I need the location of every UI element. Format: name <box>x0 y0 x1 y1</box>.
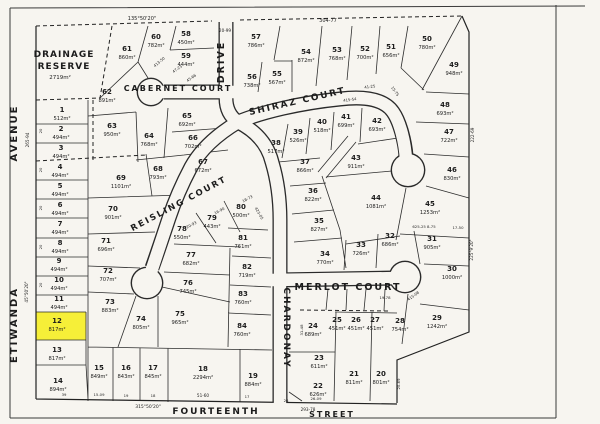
lot-number-6: 6 <box>58 201 63 209</box>
lot-number-16: 16 <box>121 364 131 372</box>
lot-number-7: 7 <box>58 220 63 228</box>
dimension-text: 293-78 <box>301 407 316 412</box>
dimension-text: 17 <box>245 394 250 399</box>
lot-number-35: 35 <box>314 217 324 225</box>
dimension-text: 17-50 <box>452 225 464 230</box>
lot-area-32: 686m² <box>381 242 398 248</box>
lot-area-31: 905m² <box>423 245 440 251</box>
lot-number-34: 34 <box>320 250 330 258</box>
lot-number-39: 39 <box>293 128 303 136</box>
lot-number-72: 72 <box>103 267 113 275</box>
lot-number-36: 36 <box>308 187 318 195</box>
lot-area-60: 782m² <box>147 43 164 49</box>
lot-area-19: 884m² <box>244 382 261 388</box>
lot-area-79: 443m² <box>203 224 220 230</box>
dimension-text: 20 <box>38 128 43 133</box>
lot-area-51: 656m² <box>382 53 399 59</box>
lot-area-11: 494m² <box>50 305 67 311</box>
lot-number-76: 76 <box>183 279 193 287</box>
lot-number-32: 32 <box>385 232 395 240</box>
lot-area-80: 500m² <box>232 213 249 219</box>
lot-area-4: 494m² <box>51 173 68 179</box>
lot-number-26: 26 <box>351 316 361 324</box>
dimension-text: 265-94 <box>25 132 30 147</box>
lot-area-8: 494m² <box>51 249 68 255</box>
lot-number-73: 73 <box>105 298 115 306</box>
lot-area-5: 494m² <box>51 192 68 198</box>
lot-area-78: 550m² <box>173 235 190 241</box>
dimension-text: 18 <box>151 393 156 398</box>
dimension-text: 45°50'20" <box>24 281 29 302</box>
lot-area-53: 768m² <box>328 56 345 62</box>
lot-area-25: 451m² <box>328 326 345 332</box>
lot-area-67: 672m² <box>194 168 211 174</box>
lot-number-46: 46 <box>447 166 457 174</box>
lot-number-17: 17 <box>148 364 158 372</box>
lot-number-8: 8 <box>58 239 63 247</box>
lot-area-64: 768m² <box>140 142 157 148</box>
lot-number-50: 50 <box>422 35 432 43</box>
lot-area-71: 696m² <box>97 247 114 253</box>
dimension-text: 20 <box>38 282 43 287</box>
lot-number-84: 84 <box>237 322 247 330</box>
lot-number-64: 64 <box>144 132 154 140</box>
street-label-avenue: AVENUE <box>9 105 20 162</box>
lot-number-24: 24 <box>308 322 318 330</box>
lot-area-40: 518m² <box>313 128 330 134</box>
lot-area-36: 822m² <box>304 197 321 203</box>
lot-number-29: 29 <box>432 314 442 322</box>
plan-canvas: DRAINAGE RESERVE 2719m² 1512m²2494m²3494… <box>0 0 600 424</box>
lot-number-48: 48 <box>440 101 450 109</box>
lot-area-77: 682m² <box>182 261 199 267</box>
lot-area-83: 760m² <box>234 300 251 306</box>
lot-number-45: 45 <box>425 200 435 208</box>
lot-area-72: 707m² <box>99 277 116 283</box>
lot-area-43: 911m² <box>347 164 364 170</box>
lot-number-81: 81 <box>238 234 248 242</box>
lot-number-22: 22 <box>313 382 323 390</box>
lot-number-59: 59 <box>181 52 191 60</box>
lot-area-12: 817m² <box>48 327 65 333</box>
lot-area-7: 494m² <box>51 230 68 236</box>
street-label-merlot-court: MERLOT COURT <box>295 282 402 293</box>
lot-number-54: 54 <box>301 48 311 56</box>
lot-number-11: 11 <box>54 295 64 303</box>
lot-area-37: 866m² <box>296 168 313 174</box>
lot-number-80: 80 <box>236 203 246 211</box>
lot-area-29: 1242m² <box>427 324 447 330</box>
lot-number-74: 74 <box>136 315 146 323</box>
lot-area-41: 699m² <box>337 123 354 129</box>
lot-area-30: 1000m² <box>442 275 462 281</box>
lot-area-56: 738m² <box>243 83 260 89</box>
lot-area-74: 805m² <box>132 325 149 331</box>
dimension-text: 20-99 <box>219 28 232 33</box>
lot-area-1: 512m² <box>53 116 70 122</box>
lot-area-39: 526m² <box>289 138 306 144</box>
lot-area-3: 494m² <box>52 154 69 160</box>
dimension-text: 26-09 <box>310 396 322 401</box>
lot-number-60: 60 <box>151 33 161 41</box>
lot-number-55: 55 <box>272 70 282 78</box>
lot-area-38: 517m² <box>267 149 284 155</box>
lot-area-28: 754m² <box>391 327 408 333</box>
lot-number-52: 52 <box>360 45 370 53</box>
lot-area-6: 494m² <box>51 211 68 217</box>
lot-area-75: 965m² <box>171 320 188 326</box>
lot-number-56: 56 <box>247 73 257 81</box>
lot-number-51: 51 <box>386 43 396 51</box>
lot-area-50: 780m² <box>418 45 435 51</box>
dimension-text: 135°50'20" <box>128 16 156 22</box>
lot-number-68: 68 <box>153 165 163 173</box>
lot-number-75: 75 <box>175 310 185 318</box>
dimension-text: 20-69 <box>396 378 401 390</box>
reserve-line2: RESERVE <box>38 62 91 72</box>
lot-number-49: 49 <box>449 61 459 69</box>
lot-area-24: 689m² <box>304 332 321 338</box>
lot-area-55: 567m² <box>268 80 285 86</box>
lot-area-73: 883m² <box>101 308 118 314</box>
lot-number-63: 63 <box>107 122 117 130</box>
dimension-text: 19-78 <box>379 295 391 300</box>
lot-area-65: 692m² <box>178 122 195 128</box>
lot-number-15: 15 <box>94 364 104 372</box>
lot-area-21: 811m² <box>345 380 362 386</box>
lot-area-10: 494m² <box>50 286 67 292</box>
lot-area-66: 702m² <box>184 144 201 150</box>
dimension-text: 625-25 8-75 <box>412 224 436 229</box>
lot-number-42: 42 <box>372 117 382 125</box>
lot-number-18: 18 <box>198 365 208 373</box>
lot-number-65: 65 <box>182 112 192 120</box>
lot-number-71: 71 <box>101 237 111 245</box>
lot-number-4: 4 <box>58 163 63 171</box>
street-label-drive: DRIVE <box>216 41 227 84</box>
dimension-text: 31-48 <box>299 324 304 336</box>
street-label-fourteenth: FOURTEENTH <box>172 407 259 417</box>
dimension-text: 39 <box>62 392 67 397</box>
lot-number-77: 77 <box>186 251 196 259</box>
lot-area-42: 693m² <box>368 127 385 133</box>
dimension-text: 26 <box>284 398 289 403</box>
lot-number-5: 5 <box>58 182 63 190</box>
lot-area-13: 817m² <box>48 356 65 362</box>
lot-area-58: 450m² <box>177 40 194 46</box>
lot-number-20: 20 <box>376 370 386 378</box>
lot-area-18: 2294m² <box>193 375 213 381</box>
dimension-text: 304-77 <box>319 18 337 24</box>
reserve-line1: DRAINAGE <box>34 50 95 60</box>
lot-area-47: 722m² <box>440 138 457 144</box>
lot-area-52: 700m² <box>356 55 373 61</box>
lot-number-69: 69 <box>116 174 126 182</box>
lot-number-58: 58 <box>181 30 191 38</box>
lot-number-14: 14 <box>53 377 63 385</box>
lot-area-15: 849m² <box>90 374 107 380</box>
lot-area-84: 760m² <box>233 332 250 338</box>
dimension-text: 225°9'20" <box>469 239 474 260</box>
lot-area-23: 611m² <box>310 364 327 370</box>
lot-number-37: 37 <box>300 158 310 166</box>
lot-area-69: 1101m² <box>111 184 131 190</box>
lot-number-33: 33 <box>356 241 366 249</box>
lot-number-38: 38 <box>271 139 281 147</box>
lot-number-13: 13 <box>52 346 62 354</box>
lot-number-67: 67 <box>198 158 208 166</box>
dimension-text: 20 <box>38 244 43 249</box>
lot-number-53: 53 <box>332 46 342 54</box>
lot-number-30: 30 <box>447 265 457 273</box>
lot-number-28: 28 <box>395 317 405 325</box>
street-label-cabernet-court: CABERNET COURT <box>124 84 233 93</box>
lot-area-34: 770m² <box>316 260 333 266</box>
lot-number-61: 61 <box>122 45 132 53</box>
lot-area-17: 845m² <box>144 374 161 380</box>
dimension-text: 20 <box>38 167 43 172</box>
street-label-street: STREET <box>309 410 355 419</box>
lot-number-12: 12 <box>52 317 62 325</box>
lot-number-21: 21 <box>349 370 359 378</box>
lot-number-83: 83 <box>238 290 248 298</box>
lot-number-27: 27 <box>370 316 380 324</box>
dimension-text: 20 <box>38 205 43 210</box>
lot-number-3: 3 <box>59 144 64 152</box>
lot-area-63: 950m² <box>103 132 120 138</box>
lot-number-70: 70 <box>108 205 118 213</box>
lot-number-2: 2 <box>59 125 64 133</box>
lot-number-23: 23 <box>314 354 324 362</box>
lot-number-31: 31 <box>427 235 437 243</box>
lot-number-62: 62 <box>102 88 112 96</box>
lot-area-57: 786m² <box>247 43 264 49</box>
lot-number-41: 41 <box>341 113 351 121</box>
lot-area-54: 872m² <box>297 58 314 64</box>
lot-area-16: 843m² <box>117 374 134 380</box>
lot-area-49: 948m² <box>445 71 462 77</box>
subdivision-plan-image: DRAINAGE RESERVE 2719m² 1512m²2494m²3494… <box>0 0 600 424</box>
lot-area-46: 830m² <box>443 176 460 182</box>
lot-area-81: 761m² <box>234 244 251 250</box>
lot-number-44: 44 <box>371 194 381 202</box>
lot-area-70: 901m² <box>104 215 121 221</box>
dimension-text: 51-60 <box>197 393 210 398</box>
lot-area-76: 745m² <box>179 289 196 295</box>
lot-number-19: 19 <box>248 372 258 380</box>
dimension-text: 315°50'20" <box>135 404 161 410</box>
lot-area-35: 827m² <box>310 227 327 233</box>
lot-number-40: 40 <box>317 118 327 126</box>
lot-number-1: 1 <box>60 106 65 114</box>
lot-number-43: 43 <box>351 154 361 162</box>
lot-number-47: 47 <box>444 128 454 136</box>
lot-number-66: 66 <box>188 134 198 142</box>
lot-area-9: 494m² <box>50 267 67 273</box>
lot-number-10: 10 <box>54 276 64 284</box>
lot-area-68: 793m² <box>149 175 166 181</box>
lot-area-26: 451m² <box>347 326 364 332</box>
street-label-etiwanda: ETIWANDA <box>9 287 20 363</box>
dimension-text: 222-69 <box>470 127 475 142</box>
lot-number-25: 25 <box>332 316 342 324</box>
lot-area-45: 1253m² <box>420 210 440 216</box>
lot-number-57: 57 <box>251 33 261 41</box>
lot-area-20: 801m² <box>372 380 389 386</box>
dimension-text: 19 <box>124 393 129 398</box>
lot-number-9: 9 <box>57 257 62 265</box>
lot-area-44: 1081m² <box>366 204 386 210</box>
lot-area-27: 451m² <box>366 326 383 332</box>
street-label-chardonay: CHARDONAY <box>281 287 291 368</box>
lot-area-82: 719m² <box>238 273 255 279</box>
lot-area-62: 891m² <box>98 98 115 104</box>
lot-area-33: 726m² <box>352 251 369 257</box>
lot-area-48: 693m² <box>436 111 453 117</box>
lot-area-2: 494m² <box>52 135 69 141</box>
lot-area-61: 860m² <box>118 55 135 61</box>
reserve-area: 2719m² <box>49 74 71 81</box>
lot-number-82: 82 <box>242 263 252 271</box>
dimension-text: 15-09 <box>93 392 105 397</box>
